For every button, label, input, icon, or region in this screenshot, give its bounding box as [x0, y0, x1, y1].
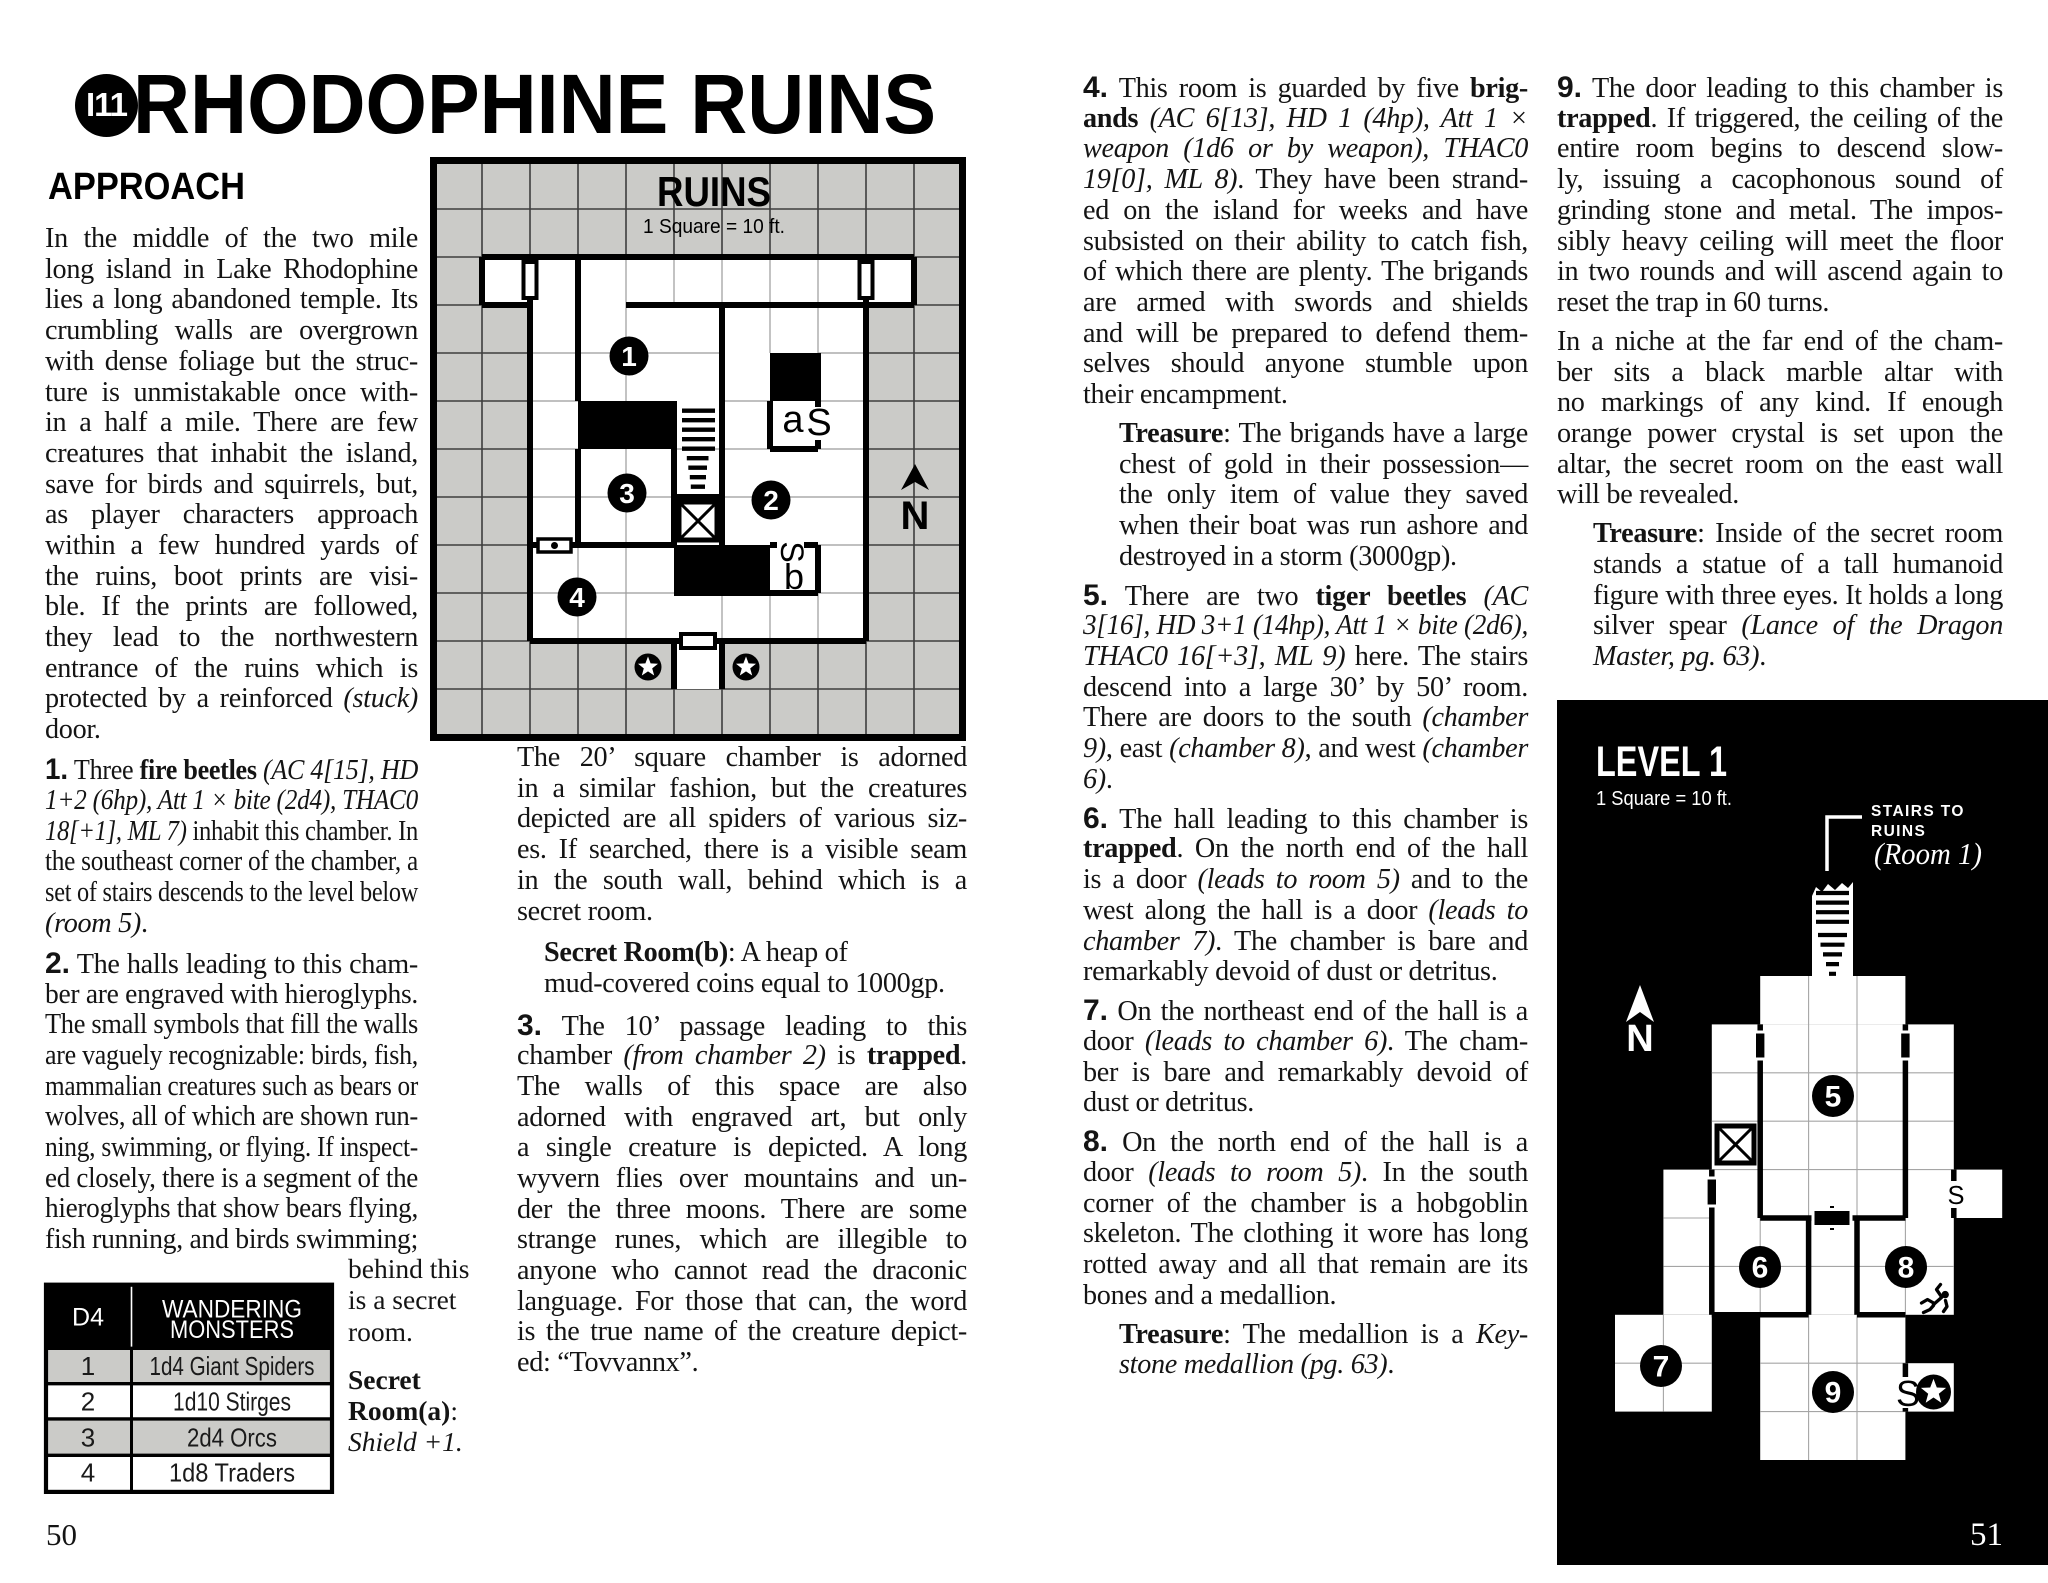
svg-text:1 Square = 10 ft.: 1 Square = 10 ft.	[1596, 787, 1732, 810]
svg-text:9: 9	[1825, 1377, 1842, 1410]
svg-text:STAIRS TO: STAIRS TO	[1871, 803, 1965, 820]
svg-text:6: 6	[1752, 1252, 1769, 1285]
svg-text:(Room 1): (Room 1)	[1874, 836, 1982, 871]
svg-text:51: 51	[1970, 1517, 2003, 1553]
svg-text:N: N	[1626, 1018, 1653, 1060]
svg-text:8: 8	[1898, 1252, 1915, 1285]
svg-text:S: S	[1947, 1182, 1964, 1210]
svg-text:LEVEL 1: LEVEL 1	[1596, 738, 1727, 786]
svg-text:7: 7	[1653, 1351, 1670, 1384]
svg-text:5: 5	[1825, 1081, 1842, 1114]
